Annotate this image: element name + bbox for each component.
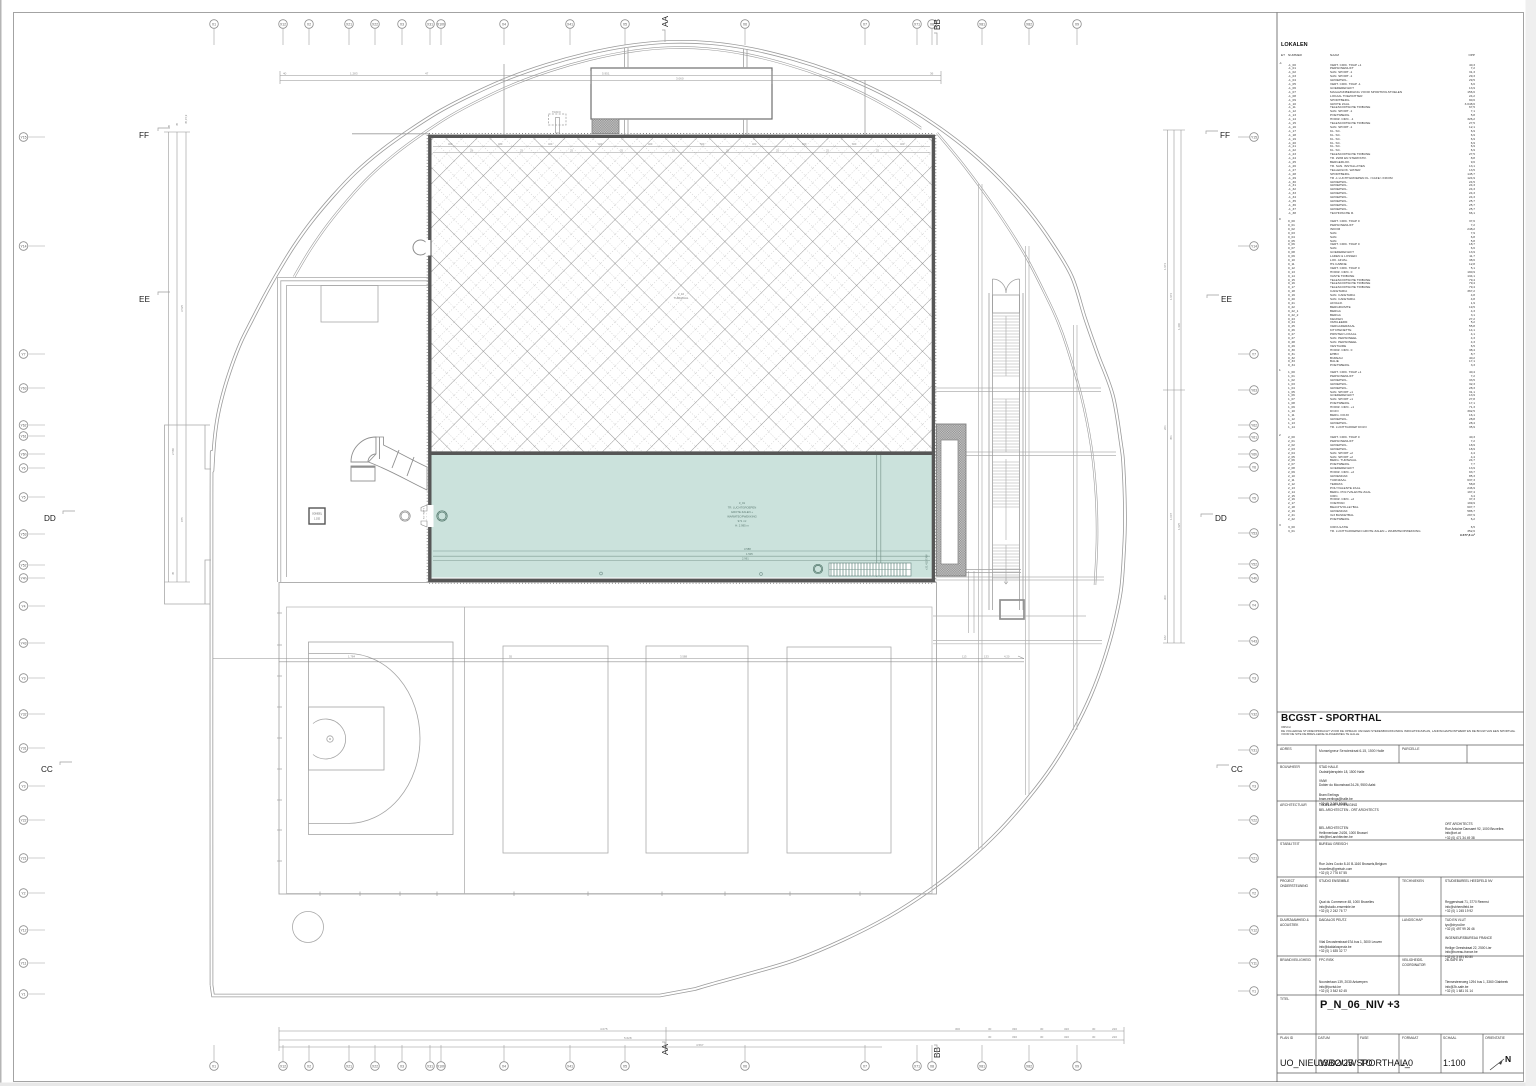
svg-text:1.973: 1.973 <box>1163 263 1167 270</box>
svg-text:Y61: Y61 <box>20 434 26 438</box>
svg-text:Y63: Y63 <box>20 386 26 390</box>
svg-text:X21: X21 <box>346 22 352 26</box>
svg-text:Y3: Y3 <box>21 784 25 788</box>
svg-text:45: 45 <box>171 571 175 575</box>
svg-text:Y5: Y5 <box>1252 496 1256 500</box>
svg-text:Y11: Y11 <box>1251 961 1257 965</box>
svg-text:30: 30 <box>1092 1027 1096 1031</box>
svg-text:4.075: 4.075 <box>600 1027 608 1031</box>
svg-text:2.580: 2.580 <box>171 448 175 455</box>
svg-text:500: 500 <box>700 142 705 146</box>
svg-text:Y11: Y11 <box>21 961 27 965</box>
svg-text:DD: DD <box>44 514 56 523</box>
svg-text:5.951: 5.951 <box>602 72 610 76</box>
svg-text:X5: X5 <box>623 22 627 26</box>
svg-text:CC: CC <box>1231 765 1243 774</box>
svg-text:1.973: 1.973 <box>1169 293 1173 300</box>
svg-text:Y5: Y5 <box>21 495 25 499</box>
svg-text:1.925: 1.925 <box>1177 523 1181 530</box>
svg-text:EE: EE <box>139 295 150 304</box>
svg-text:X7: X7 <box>863 1064 867 1068</box>
svg-text:X82: X82 <box>1026 1064 1032 1068</box>
svg-text:36: 36 <box>930 72 934 76</box>
svg-text:330: 330 <box>1012 1027 1017 1031</box>
svg-text:Y3: Y3 <box>21 676 25 680</box>
svg-text:X81: X81 <box>979 1064 985 1068</box>
svg-text:Y6h: Y6h <box>1251 452 1257 456</box>
svg-text:X2: X2 <box>307 1064 311 1068</box>
svg-text:400: 400 <box>648 142 653 146</box>
svg-text:30: 30 <box>1040 1027 1044 1031</box>
svg-text:971 m²: 971 m² <box>738 519 747 523</box>
svg-text:X31: X31 <box>427 22 433 26</box>
svg-text:Y4: Y4 <box>1252 603 1256 607</box>
svg-text:3.588: 3.588 <box>744 547 751 551</box>
svg-text:TR. LUCHTGROEPEN: TR. LUCHTGROEPEN <box>728 506 757 510</box>
svg-text:133: 133 <box>984 655 989 659</box>
svg-text:X22: X22 <box>372 1064 378 1068</box>
svg-text:Y52: Y52 <box>1251 562 1257 566</box>
svg-text:X7: X7 <box>863 22 867 26</box>
svg-text:Y31: Y31 <box>1251 748 1257 752</box>
svg-text:55: 55 <box>509 655 513 659</box>
svg-text:Y7: Y7 <box>1252 352 1256 356</box>
svg-text:X5: X5 <box>623 1064 627 1068</box>
svg-text:Y4: Y4 <box>21 604 25 608</box>
svg-text:400: 400 <box>598 142 603 146</box>
svg-text:BB: BB <box>933 1047 942 1058</box>
svg-text:47: 47 <box>425 72 429 76</box>
svg-text:Y14: Y14 <box>1251 244 1257 248</box>
svg-text:X1: X1 <box>212 1064 216 1068</box>
svg-text:400: 400 <box>852 142 857 146</box>
svg-text:X1: X1 <box>212 22 216 26</box>
svg-text:X12: X12 <box>280 1064 286 1068</box>
svg-text:45,15,9: 45,15,9 <box>184 114 188 124</box>
svg-text:EE: EE <box>1221 295 1232 304</box>
svg-text:300: 300 <box>1163 595 1167 600</box>
svg-text:Y1: Y1 <box>1252 989 1256 993</box>
svg-text:X10h: X10h <box>437 1064 445 1068</box>
svg-text:H: 2.995 m: H: 2.995 m <box>735 524 749 528</box>
svg-text:Y12: Y12 <box>1251 928 1257 932</box>
svg-text:Y43: Y43 <box>1251 639 1257 643</box>
svg-text:X9: X9 <box>1075 1064 1079 1068</box>
svg-text:Y4h: Y4h <box>20 576 26 580</box>
svg-text:3.525: 3.525 <box>180 305 184 312</box>
svg-text:X6: X6 <box>743 1064 747 1068</box>
svg-text:451: 451 <box>1169 435 1173 440</box>
svg-text:TRAFO: TRAFO <box>552 110 561 114</box>
svg-text:Y4h: Y4h <box>1251 576 1257 580</box>
svg-text:400: 400 <box>448 142 453 146</box>
svg-text:GONDEL: GONDEL <box>312 513 323 516</box>
svg-text:45: 45 <box>167 124 171 128</box>
svg-text:4.20: 4.20 <box>1004 655 1010 659</box>
svg-text:Y15: Y15 <box>1251 135 1257 139</box>
svg-text:400: 400 <box>900 142 905 146</box>
svg-text:Y6: Y6 <box>21 466 25 470</box>
svg-text:Y32: Y32 <box>20 712 26 716</box>
svg-text:400: 400 <box>498 142 503 146</box>
svg-text:GROTE ZALEN +: GROTE ZALEN + <box>731 510 754 514</box>
svg-text:220: 220 <box>1112 1035 1117 1039</box>
svg-text:DD: DD <box>1215 514 1227 523</box>
svg-text:Y62: Y62 <box>1251 423 1257 427</box>
svg-text:N: N <box>1505 1054 1511 1064</box>
svg-text:X8: X8 <box>930 1064 934 1068</box>
svg-text:30: 30 <box>1092 1035 1096 1039</box>
svg-text:1.400: 1.400 <box>1177 323 1181 330</box>
svg-text:45: 45 <box>175 122 179 126</box>
svg-text:X4: X4 <box>502 1064 506 1068</box>
svg-text:4.567: 4.567 <box>696 1043 704 1047</box>
svg-text:Y63: Y63 <box>1251 388 1257 392</box>
svg-text:2.961: 2.961 <box>742 556 749 560</box>
svg-text:AA: AA <box>661 1044 670 1055</box>
svg-text:CC: CC <box>41 765 53 774</box>
svg-text:Y52: Y52 <box>20 563 26 567</box>
svg-text:3_01: 3_01 <box>739 501 746 505</box>
svg-text:300: 300 <box>955 1027 960 1031</box>
svg-text:3.588: 3.588 <box>680 655 687 659</box>
svg-text:X4: X4 <box>502 22 506 26</box>
svg-text:X6: X6 <box>743 22 747 26</box>
svg-text:Y21: Y21 <box>1251 856 1257 860</box>
svg-text:Y53: Y53 <box>20 532 26 536</box>
svg-text:1.192: 1.192 <box>314 518 321 521</box>
svg-text:WARMTEOPWEKKING: WARMTEOPWEKKING <box>727 515 757 519</box>
svg-text:Y2: Y2 <box>1252 891 1256 895</box>
svg-text:400: 400 <box>802 142 807 146</box>
svg-text:X10h: X10h <box>437 22 445 26</box>
svg-text:30: 30 <box>988 1035 992 1039</box>
svg-text:Y2: Y2 <box>21 891 25 895</box>
svg-text:X12: X12 <box>280 22 286 26</box>
svg-text:+21.415 TAW: +21.415 TAW <box>925 554 929 570</box>
svg-text:261: 261 <box>1163 425 1167 430</box>
svg-text:FF: FF <box>139 131 149 140</box>
svg-text:30: 30 <box>1040 1035 1044 1039</box>
svg-text:Y43: Y43 <box>20 641 26 645</box>
svg-text:220: 220 <box>1112 1027 1117 1031</box>
svg-text:AA: AA <box>661 16 670 27</box>
svg-text:TURNZAAL: TURNZAAL <box>674 296 689 300</box>
svg-text:Y61: Y61 <box>1251 435 1257 439</box>
svg-text:BB: BB <box>933 19 942 30</box>
svg-text:1.505: 1.505 <box>746 552 753 556</box>
svg-text:113: 113 <box>962 655 967 659</box>
svg-text:Y1: Y1 <box>21 992 25 996</box>
svg-text:Y53: Y53 <box>1251 531 1257 535</box>
svg-text:X9: X9 <box>1075 22 1079 26</box>
svg-text:X3: X3 <box>400 22 404 26</box>
svg-text:Y7: Y7 <box>21 352 25 356</box>
svg-text:X71: X71 <box>914 1064 920 1068</box>
svg-text:FF: FF <box>1220 131 1230 140</box>
svg-text:400: 400 <box>752 142 757 146</box>
svg-text:40: 40 <box>283 72 287 76</box>
svg-text:Y22: Y22 <box>20 818 26 822</box>
svg-text:Y22: Y22 <box>1251 818 1257 822</box>
svg-text:3.060: 3.060 <box>676 77 684 81</box>
svg-text:320: 320 <box>1064 1027 1069 1031</box>
svg-text:1.007: 1.007 <box>1169 513 1173 520</box>
svg-text:Y6: Y6 <box>1252 465 1256 469</box>
svg-text:Y3: Y3 <box>1252 784 1256 788</box>
svg-text:330: 330 <box>1012 1035 1017 1039</box>
svg-text:5.628: 5.628 <box>624 1036 632 1040</box>
svg-text:Y12: Y12 <box>20 928 26 932</box>
svg-text:Y31: Y31 <box>20 746 26 750</box>
svg-text:X82: X82 <box>1026 22 1032 26</box>
svg-text:182: 182 <box>1163 635 1167 640</box>
svg-text:1.283: 1.283 <box>350 72 358 76</box>
svg-text:X81: X81 <box>979 22 985 26</box>
svg-text:X41: X41 <box>567 1064 573 1068</box>
svg-text:30: 30 <box>988 1027 992 1031</box>
svg-text:Y32: Y32 <box>1251 712 1257 716</box>
svg-text:Y6h: Y6h <box>20 452 26 456</box>
svg-text:320: 320 <box>1064 1035 1069 1039</box>
svg-text:KS TRAP 0: KS TRAP 0 <box>423 507 426 519</box>
svg-text:X2: X2 <box>307 22 311 26</box>
svg-text:X71: X71 <box>914 22 920 26</box>
svg-text:Y21: Y21 <box>20 856 26 860</box>
svg-text:400: 400 <box>548 142 553 146</box>
svg-text:1.784: 1.784 <box>348 655 355 659</box>
svg-text:X31: X31 <box>427 1064 433 1068</box>
svg-text:X22: X22 <box>372 22 378 26</box>
svg-text:975: 975 <box>180 517 184 522</box>
svg-text:Y14: Y14 <box>20 244 26 248</box>
svg-text:X41: X41 <box>567 22 573 26</box>
svg-text:Y15: Y15 <box>20 135 26 139</box>
svg-text:Y62: Y62 <box>20 423 26 427</box>
svg-text:Y3: Y3 <box>1252 676 1256 680</box>
svg-text:X3: X3 <box>400 1064 404 1068</box>
svg-text:X21: X21 <box>346 1064 352 1068</box>
